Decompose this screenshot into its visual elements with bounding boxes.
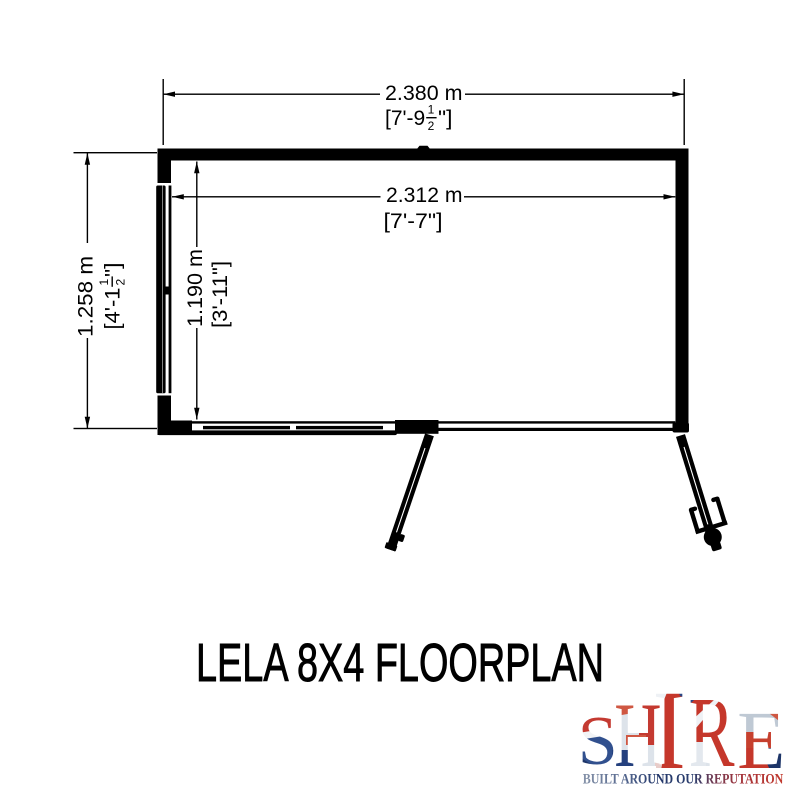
svg-text:[3'-11"]: [3'-11"]: [209, 261, 232, 328]
svg-text:[7'-9: [7'-9: [385, 107, 425, 130]
svg-text:BUILT AROUND OUR REPUTATION: BUILT AROUND OUR REPUTATION: [583, 771, 784, 788]
svg-text:2.312 m: 2.312 m: [386, 184, 463, 207]
svg-text:1: 1: [97, 279, 111, 286]
svg-text:2: 2: [428, 119, 435, 133]
svg-text:[7'-7"]: [7'-7"]: [384, 210, 443, 233]
svg-text:1: 1: [428, 103, 435, 117]
svg-text:LELA 8X4 FLOORPLAN: LELA 8X4 FLOORPLAN: [196, 633, 604, 693]
svg-text:"]: "]: [438, 107, 453, 130]
svg-text:2: 2: [114, 279, 128, 286]
svg-text:1.258 m: 1.258 m: [75, 256, 98, 337]
svg-text:2.380 m: 2.380 m: [385, 82, 463, 105]
svg-text:[4'-1: [4'-1: [102, 288, 125, 330]
svg-text:"]: "]: [102, 263, 125, 278]
svg-text:1.190 m: 1.190 m: [184, 249, 207, 327]
